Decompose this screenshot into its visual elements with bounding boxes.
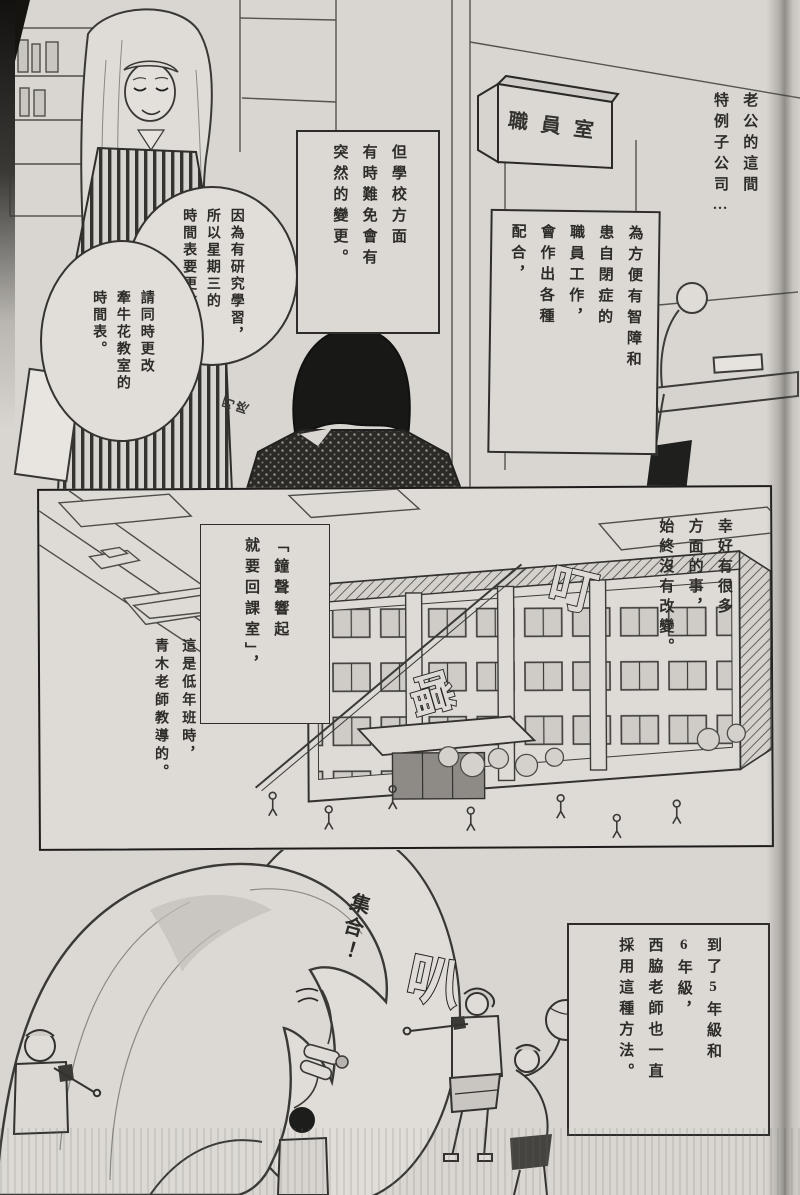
scan-edge-left: [0, 0, 15, 430]
listening-man-figure: [246, 328, 462, 492]
manga-page: 老公的這間 特例子公司… 為方便有智障和 患自閉症的 職員工作， 會作出各種 配…: [0, 0, 800, 1195]
caption-bell-rule-text: 「鐘聲響起 就要回課室」，: [236, 537, 295, 677]
caption-changes-box: 但學校方面 有時難免會有 突然的變更。: [296, 130, 440, 334]
bubble-classroom-text: 請同時更改 牽牛花教室的 時間表。: [86, 290, 157, 392]
caption-teacher-text: 這是低年班時， 青木老師教導的。: [147, 638, 202, 838]
scan-streaks-bottom: [0, 1128, 800, 1195]
caption-unchanged-text: 幸好有很多 方面的事， 始終沒有改變。: [650, 518, 738, 698]
caption-method-box: 到了5年級和 6年級， 西脇老師也一直 採用這種方法。: [567, 923, 770, 1136]
speech-bubble-classroom: 請同時更改 牽牛花教室的 時間表。: [40, 240, 204, 442]
caption-accommodation-box: 為方便有智障和 患自閉症的 職員工作， 會作出各種 配合，: [487, 209, 660, 455]
whistle: [336, 1056, 348, 1068]
caption-teacher: 這是低年班時， 青木老師教導的。: [136, 638, 212, 838]
caption-changes-text: 但學校方面 有時難免會有 突然的變更。: [324, 144, 412, 270]
caption-accommodation-text: 為方便有智障和 患自閉症的 職員工作， 會作出各種 配合，: [500, 223, 648, 372]
caption-method-text: 到了5年級和 6年級， 西脇老師也一直 採用這種方法。: [610, 937, 727, 1084]
page-fold-shadow: [766, 0, 800, 1195]
caption-unchanged: 幸好有很多 方面的事， 始終沒有改變。: [648, 518, 740, 698]
caption-bell-rule-box: 「鐘聲響起 就要回課室」，: [200, 524, 330, 724]
caption-company-text: 老公的這間 特例子公司…: [705, 92, 764, 262]
